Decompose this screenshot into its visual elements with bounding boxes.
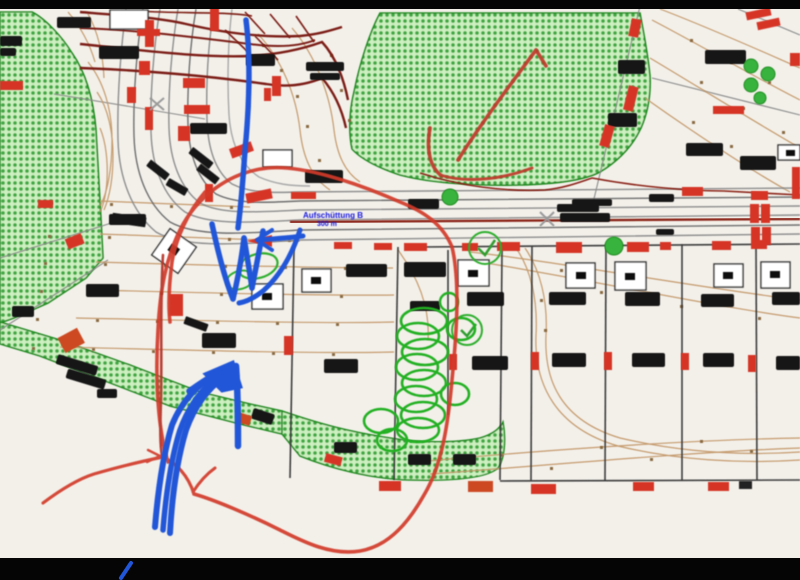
svg-text:300 m: 300 m bbox=[317, 221, 337, 228]
svg-text:Aufschüttung B: Aufschüttung B bbox=[303, 211, 363, 220]
